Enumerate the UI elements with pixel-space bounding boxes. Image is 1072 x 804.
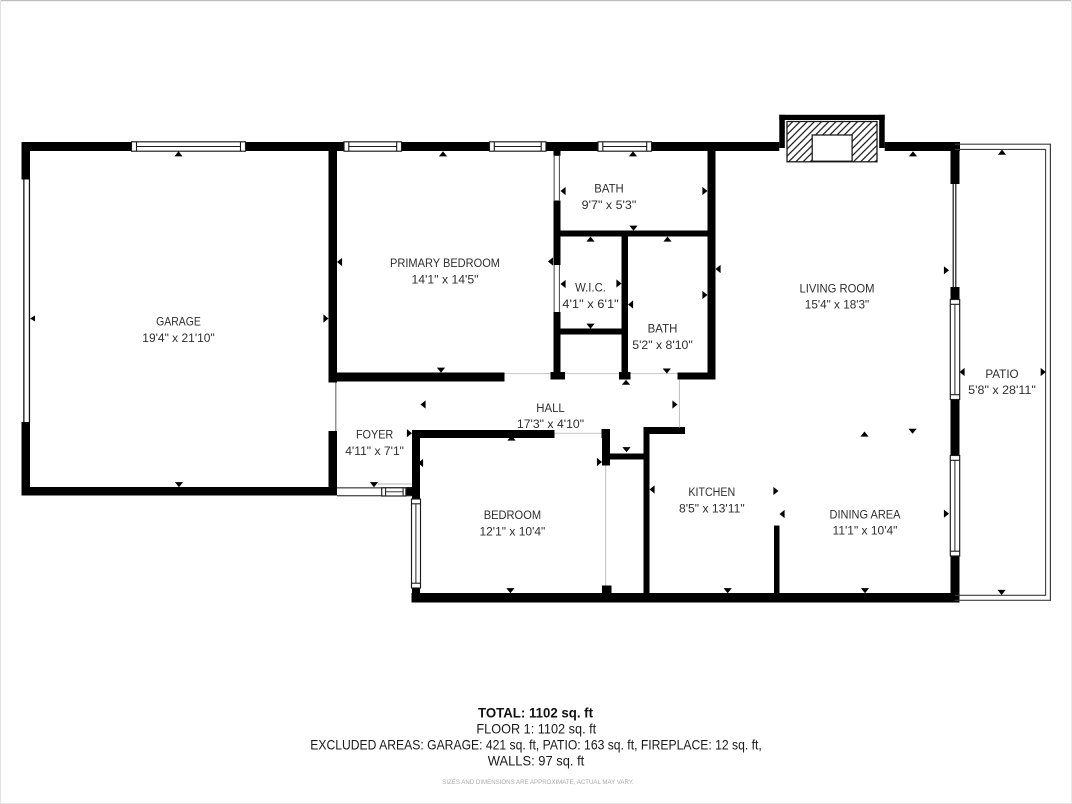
svg-text:19'4" x 21'10": 19'4" x 21'10": [142, 331, 214, 345]
svg-text:PATIO: PATIO: [985, 367, 1018, 381]
svg-text:5'8" x 28'11": 5'8" x 28'11": [968, 383, 1036, 397]
svg-text:EXCLUDED AREAS: GARAGE: 421 sq: EXCLUDED AREAS: GARAGE: 421 sq. ft, PATI…: [310, 737, 762, 753]
svg-text:GARAGE: GARAGE: [156, 315, 201, 329]
svg-text:4'1" x 6'1": 4'1" x 6'1": [562, 297, 618, 311]
svg-text:9'7" x 5'3": 9'7" x 5'3": [582, 198, 637, 212]
svg-text:LIVING ROOM: LIVING ROOM: [800, 281, 875, 295]
svg-text:SIZES AND DIMENSIONS ARE APPRO: SIZES AND DIMENSIONS ARE APPROXIMATE, AC…: [442, 779, 634, 786]
svg-text:BEDROOM: BEDROOM: [484, 508, 541, 522]
svg-text:4'11" x 7'1": 4'11" x 7'1": [345, 444, 404, 458]
svg-text:FLOOR 1: 1102 sq. ft: FLOOR 1: 1102 sq. ft: [476, 721, 596, 737]
svg-text:DINING AREA: DINING AREA: [830, 508, 902, 522]
svg-text:W.I.C.: W.I.C.: [575, 280, 606, 294]
svg-text:PRIMARY BEDROOM: PRIMARY BEDROOM: [390, 256, 500, 270]
svg-text:8'5" x 13'11": 8'5" x 13'11": [679, 502, 745, 516]
svg-text:BATH: BATH: [594, 182, 623, 196]
svg-text:KITCHEN: KITCHEN: [688, 485, 735, 499]
svg-text:11'1" x 10'4": 11'1" x 10'4": [833, 523, 898, 537]
svg-text:FOYER: FOYER: [356, 428, 393, 442]
svg-text:BATH: BATH: [648, 322, 678, 336]
svg-text:WALLS: 97 sq. ft: WALLS: 97 sq. ft: [488, 753, 585, 769]
svg-text:HALL: HALL: [536, 401, 565, 415]
svg-text:14'1" x 14'5": 14'1" x 14'5": [412, 273, 479, 287]
svg-text:5'2" x 8'10": 5'2" x 8'10": [632, 338, 693, 352]
svg-text:12'1" x 10'4": 12'1" x 10'4": [479, 525, 545, 539]
svg-text:TOTAL: 1102 sq. ft: TOTAL: 1102 sq. ft: [478, 705, 593, 721]
svg-text:17'3" x 4'10": 17'3" x 4'10": [517, 417, 584, 431]
svg-text:15'4" x 18'3": 15'4" x 18'3": [805, 297, 869, 311]
